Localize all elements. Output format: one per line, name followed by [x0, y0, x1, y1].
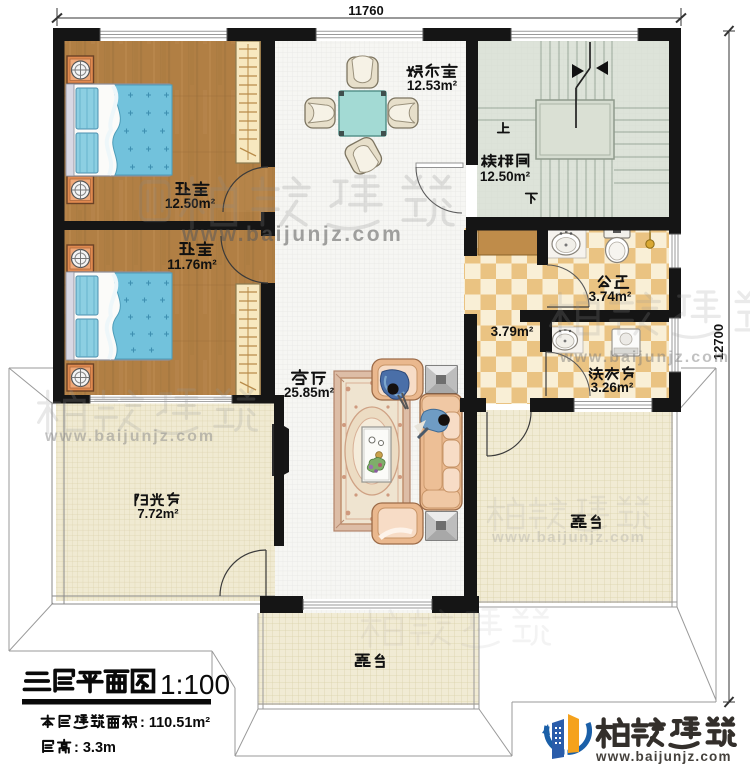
svg-text:1:100: 1:100 [160, 669, 230, 700]
svg-text:www.baijunjz.com: www.baijunjz.com [559, 349, 730, 366]
svg-text:www.baijunjz.com: www.baijunjz.com [491, 529, 645, 546]
svg-text:3.26m²: 3.26m² [591, 380, 634, 395]
svg-text:12.50m²: 12.50m² [480, 169, 531, 184]
svg-text:www.baijunjz.com: www.baijunjz.com [595, 749, 732, 764]
svg-text:25.85m²: 25.85m² [284, 385, 335, 400]
svg-text:www.baijunjz.com: www.baijunjz.com [44, 428, 215, 445]
svg-text:11760: 11760 [348, 3, 383, 18]
svg-text:12.53m²: 12.53m² [407, 78, 458, 93]
svg-text:3.79m²: 3.79m² [491, 324, 534, 339]
svg-text:www.baijunjz.com: www.baijunjz.com [181, 223, 403, 246]
svg-text:7.72m²: 7.72m² [137, 506, 179, 521]
svg-text:: 3.3m: : 3.3m [74, 740, 116, 756]
svg-text:: 110.51m²: : 110.51m² [140, 715, 210, 731]
svg-text:11.76m²: 11.76m² [167, 257, 217, 272]
